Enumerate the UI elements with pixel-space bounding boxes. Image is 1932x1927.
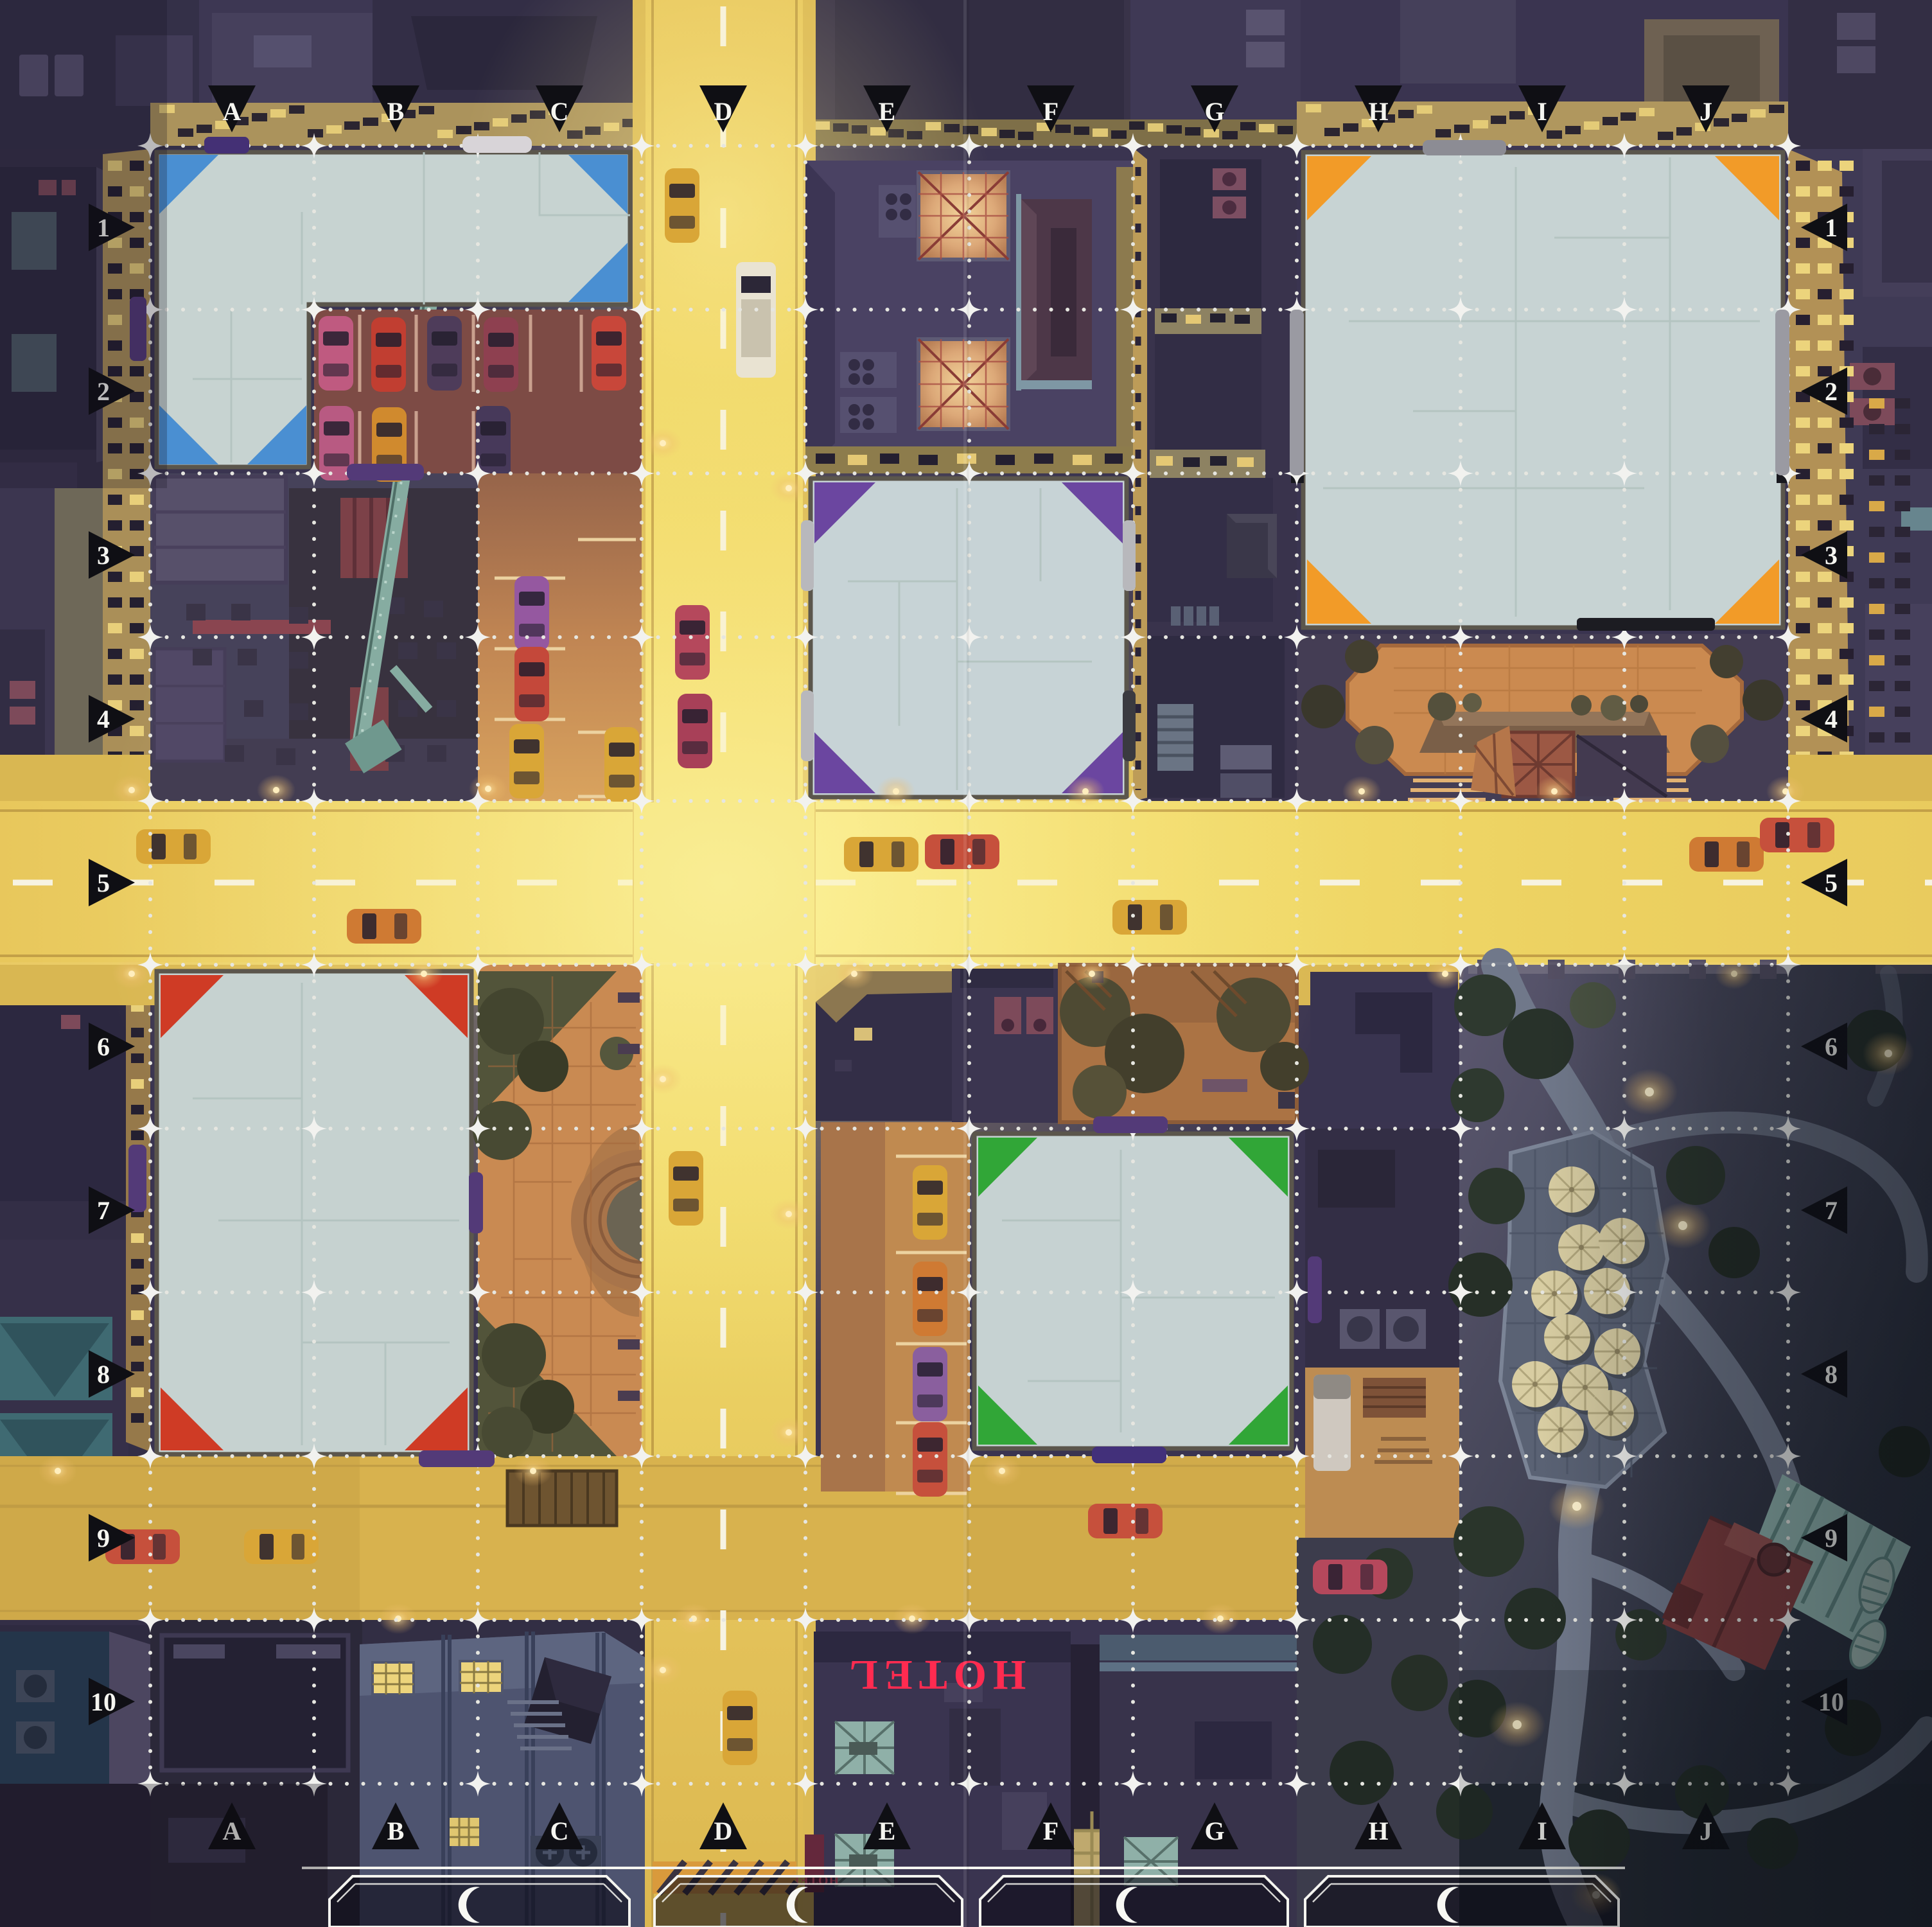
svg-text:J: J — [1699, 97, 1712, 126]
svg-text:8: 8 — [97, 1360, 110, 1389]
svg-text:G: G — [1204, 1817, 1224, 1845]
svg-text:H: H — [1368, 1817, 1388, 1845]
svg-text:B: B — [387, 1817, 405, 1845]
svg-text:5: 5 — [97, 868, 110, 897]
svg-text:G: G — [1204, 97, 1224, 126]
svg-text:E: E — [879, 97, 896, 126]
svg-text:H: H — [1368, 97, 1388, 126]
svg-text:4: 4 — [97, 705, 110, 734]
svg-text:6: 6 — [97, 1032, 110, 1061]
svg-text:9: 9 — [97, 1524, 110, 1553]
svg-text:A: A — [223, 97, 241, 126]
svg-text:C: C — [550, 97, 569, 126]
svg-text:5: 5 — [1825, 868, 1838, 897]
svg-text:7: 7 — [97, 1196, 110, 1225]
svg-text:2: 2 — [1825, 377, 1838, 406]
svg-text:10: 10 — [91, 1687, 116, 1716]
svg-text:F: F — [1043, 1817, 1058, 1845]
svg-text:D: D — [714, 97, 733, 126]
svg-text:3: 3 — [1825, 541, 1838, 570]
svg-text:HOTEL: HOTEL — [843, 1651, 1026, 1698]
svg-text:4: 4 — [1825, 705, 1838, 734]
svg-text:D: D — [714, 1817, 733, 1845]
svg-text:I: I — [1537, 97, 1547, 126]
svg-text:C: C — [550, 1817, 569, 1845]
svg-text:3: 3 — [97, 541, 110, 570]
svg-text:F: F — [1043, 97, 1058, 126]
svg-text:E: E — [879, 1817, 896, 1845]
svg-text:1: 1 — [1825, 213, 1838, 242]
svg-text:B: B — [387, 97, 405, 126]
